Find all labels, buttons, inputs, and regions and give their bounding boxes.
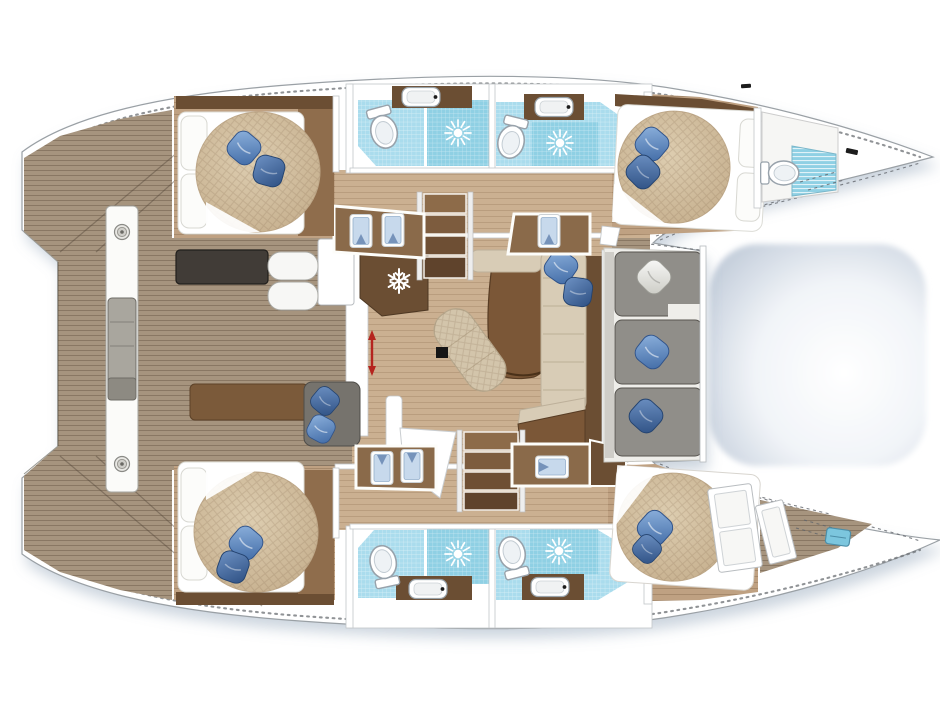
- cabin-port-aft: [176, 96, 339, 238]
- cabin-stbd-aft: [176, 462, 339, 605]
- trampoline: [710, 244, 926, 466]
- forward-cockpit: [604, 246, 706, 462]
- catamaran-floor-plan: [0, 0, 940, 705]
- winch-icon: [115, 457, 130, 472]
- cockpit-bench: [176, 250, 268, 284]
- wardrobe-shirt-icon: [536, 456, 569, 478]
- cockpit-seat: [268, 252, 318, 280]
- sink-icon: [535, 98, 573, 117]
- wardrobe-shirt-icon: [382, 214, 404, 247]
- wardrobe-shirt-icon: [371, 452, 393, 485]
- deck-hatch-icon: [825, 527, 851, 546]
- salon-bench: [190, 384, 308, 420]
- wardrobe-stbd-aft: [356, 446, 436, 490]
- aft-beam: [106, 206, 138, 492]
- wardrobe-port-aft: [334, 206, 424, 258]
- sink-icon: [409, 580, 447, 599]
- wardrobe-port-fwd: [508, 214, 590, 254]
- cabin-port-fwd: [612, 94, 768, 232]
- wardrobe-shirt-icon: [350, 215, 372, 248]
- wardrobe-shirt-icon: [538, 215, 560, 248]
- bathrooms-port: [346, 84, 652, 173]
- winch-icon: [115, 225, 130, 240]
- throw-pillow: [562, 276, 594, 308]
- table-pedestal: [436, 347, 448, 358]
- wardrobe-shirt-icon: [401, 450, 423, 483]
- sink-icon: [531, 578, 569, 597]
- toilet-icon: [761, 161, 799, 185]
- cockpit-seat: [268, 282, 318, 310]
- floor-plan-canvas: [0, 0, 940, 705]
- bathrooms-stbd: [346, 524, 652, 628]
- cleat-icon: [741, 84, 751, 89]
- sink-icon: [402, 88, 440, 107]
